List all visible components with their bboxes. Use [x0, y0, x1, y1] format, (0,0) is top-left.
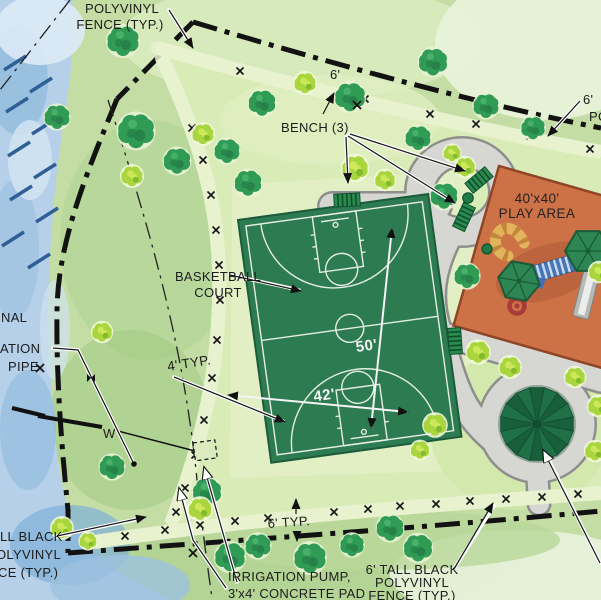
gazebo	[498, 385, 576, 463]
play-area-label-1: 40'x40'	[515, 191, 560, 206]
tree-dark	[248, 89, 277, 118]
trash-can-2	[482, 244, 492, 254]
tree-dark	[339, 532, 365, 558]
label-fence-br-3: FENCE (TYP.)	[368, 588, 455, 600]
pump-pad	[193, 440, 217, 461]
tree-lime	[410, 440, 431, 461]
tree-dark	[244, 532, 271, 559]
label-fence-bl-3: CE (TYP.)	[0, 565, 58, 580]
tree-lime	[498, 355, 522, 379]
label-pipe-1: ATION	[0, 341, 40, 356]
tree-dark	[98, 453, 125, 480]
label-court-2: COURT	[194, 285, 241, 300]
label-pump-1: IRRIGATION PUMP,	[228, 569, 351, 584]
tree-dark	[403, 533, 434, 564]
tree-lime	[442, 143, 461, 162]
tree-lime	[191, 122, 215, 146]
trash-can-1	[463, 193, 473, 203]
label-fence-tr-1: 6'	[583, 92, 593, 107]
tree-dark	[453, 262, 480, 289]
tree-dark	[520, 115, 546, 141]
water-line-label: W	[103, 426, 116, 441]
label-fence-tl-1: POLYVINYL	[85, 1, 159, 16]
tree-lime	[564, 366, 586, 388]
tree-lime	[293, 71, 317, 95]
label-fence-tr-2: PO	[589, 109, 601, 124]
tree-dark	[234, 169, 263, 198]
bench-1	[334, 193, 361, 207]
tree-lime	[78, 531, 97, 550]
tree-dark	[472, 92, 499, 119]
tree-dark	[213, 137, 240, 164]
tree-lime	[120, 164, 144, 188]
dim-50: 50'	[355, 336, 379, 356]
label-6ft-bottom: 6' TYP.	[267, 513, 310, 531]
tree-lime	[187, 496, 213, 522]
label-canal-partial: NAL	[1, 310, 27, 325]
label-pump-2: 3'x4' CONCRETE PAD	[228, 586, 365, 600]
label-6ft-top: 6'	[330, 67, 340, 82]
label-court-1: BASKETBALL	[175, 269, 261, 284]
tree-dark	[43, 103, 70, 130]
tree-dark	[376, 514, 405, 543]
tree-dark	[404, 124, 431, 151]
tree-lime	[422, 412, 448, 438]
site-plan-svg: 50' 42'	[0, 0, 601, 600]
label-pipe-2: PIPE	[8, 359, 39, 374]
tree-dark	[418, 47, 449, 78]
tree-dark	[116, 111, 155, 150]
tree-lime	[465, 339, 491, 365]
bench-4	[448, 328, 463, 355]
label-fence-tl-2: FENCE (TYP.)	[76, 17, 163, 32]
tree-lime	[341, 154, 370, 183]
tree-lime	[374, 169, 396, 191]
label-fence-bl-2: OLYVINYL	[0, 547, 61, 562]
label-bench: BENCH (3)	[281, 120, 349, 135]
dim-42: 42'	[312, 386, 336, 406]
site-plan: 50' 42'	[0, 0, 601, 600]
play-area-label-2: PLAY AREA	[499, 206, 576, 221]
tree-lime	[91, 321, 113, 343]
tree-dark	[163, 147, 192, 176]
label-fence-bl-1: LL BLACK	[0, 529, 63, 544]
